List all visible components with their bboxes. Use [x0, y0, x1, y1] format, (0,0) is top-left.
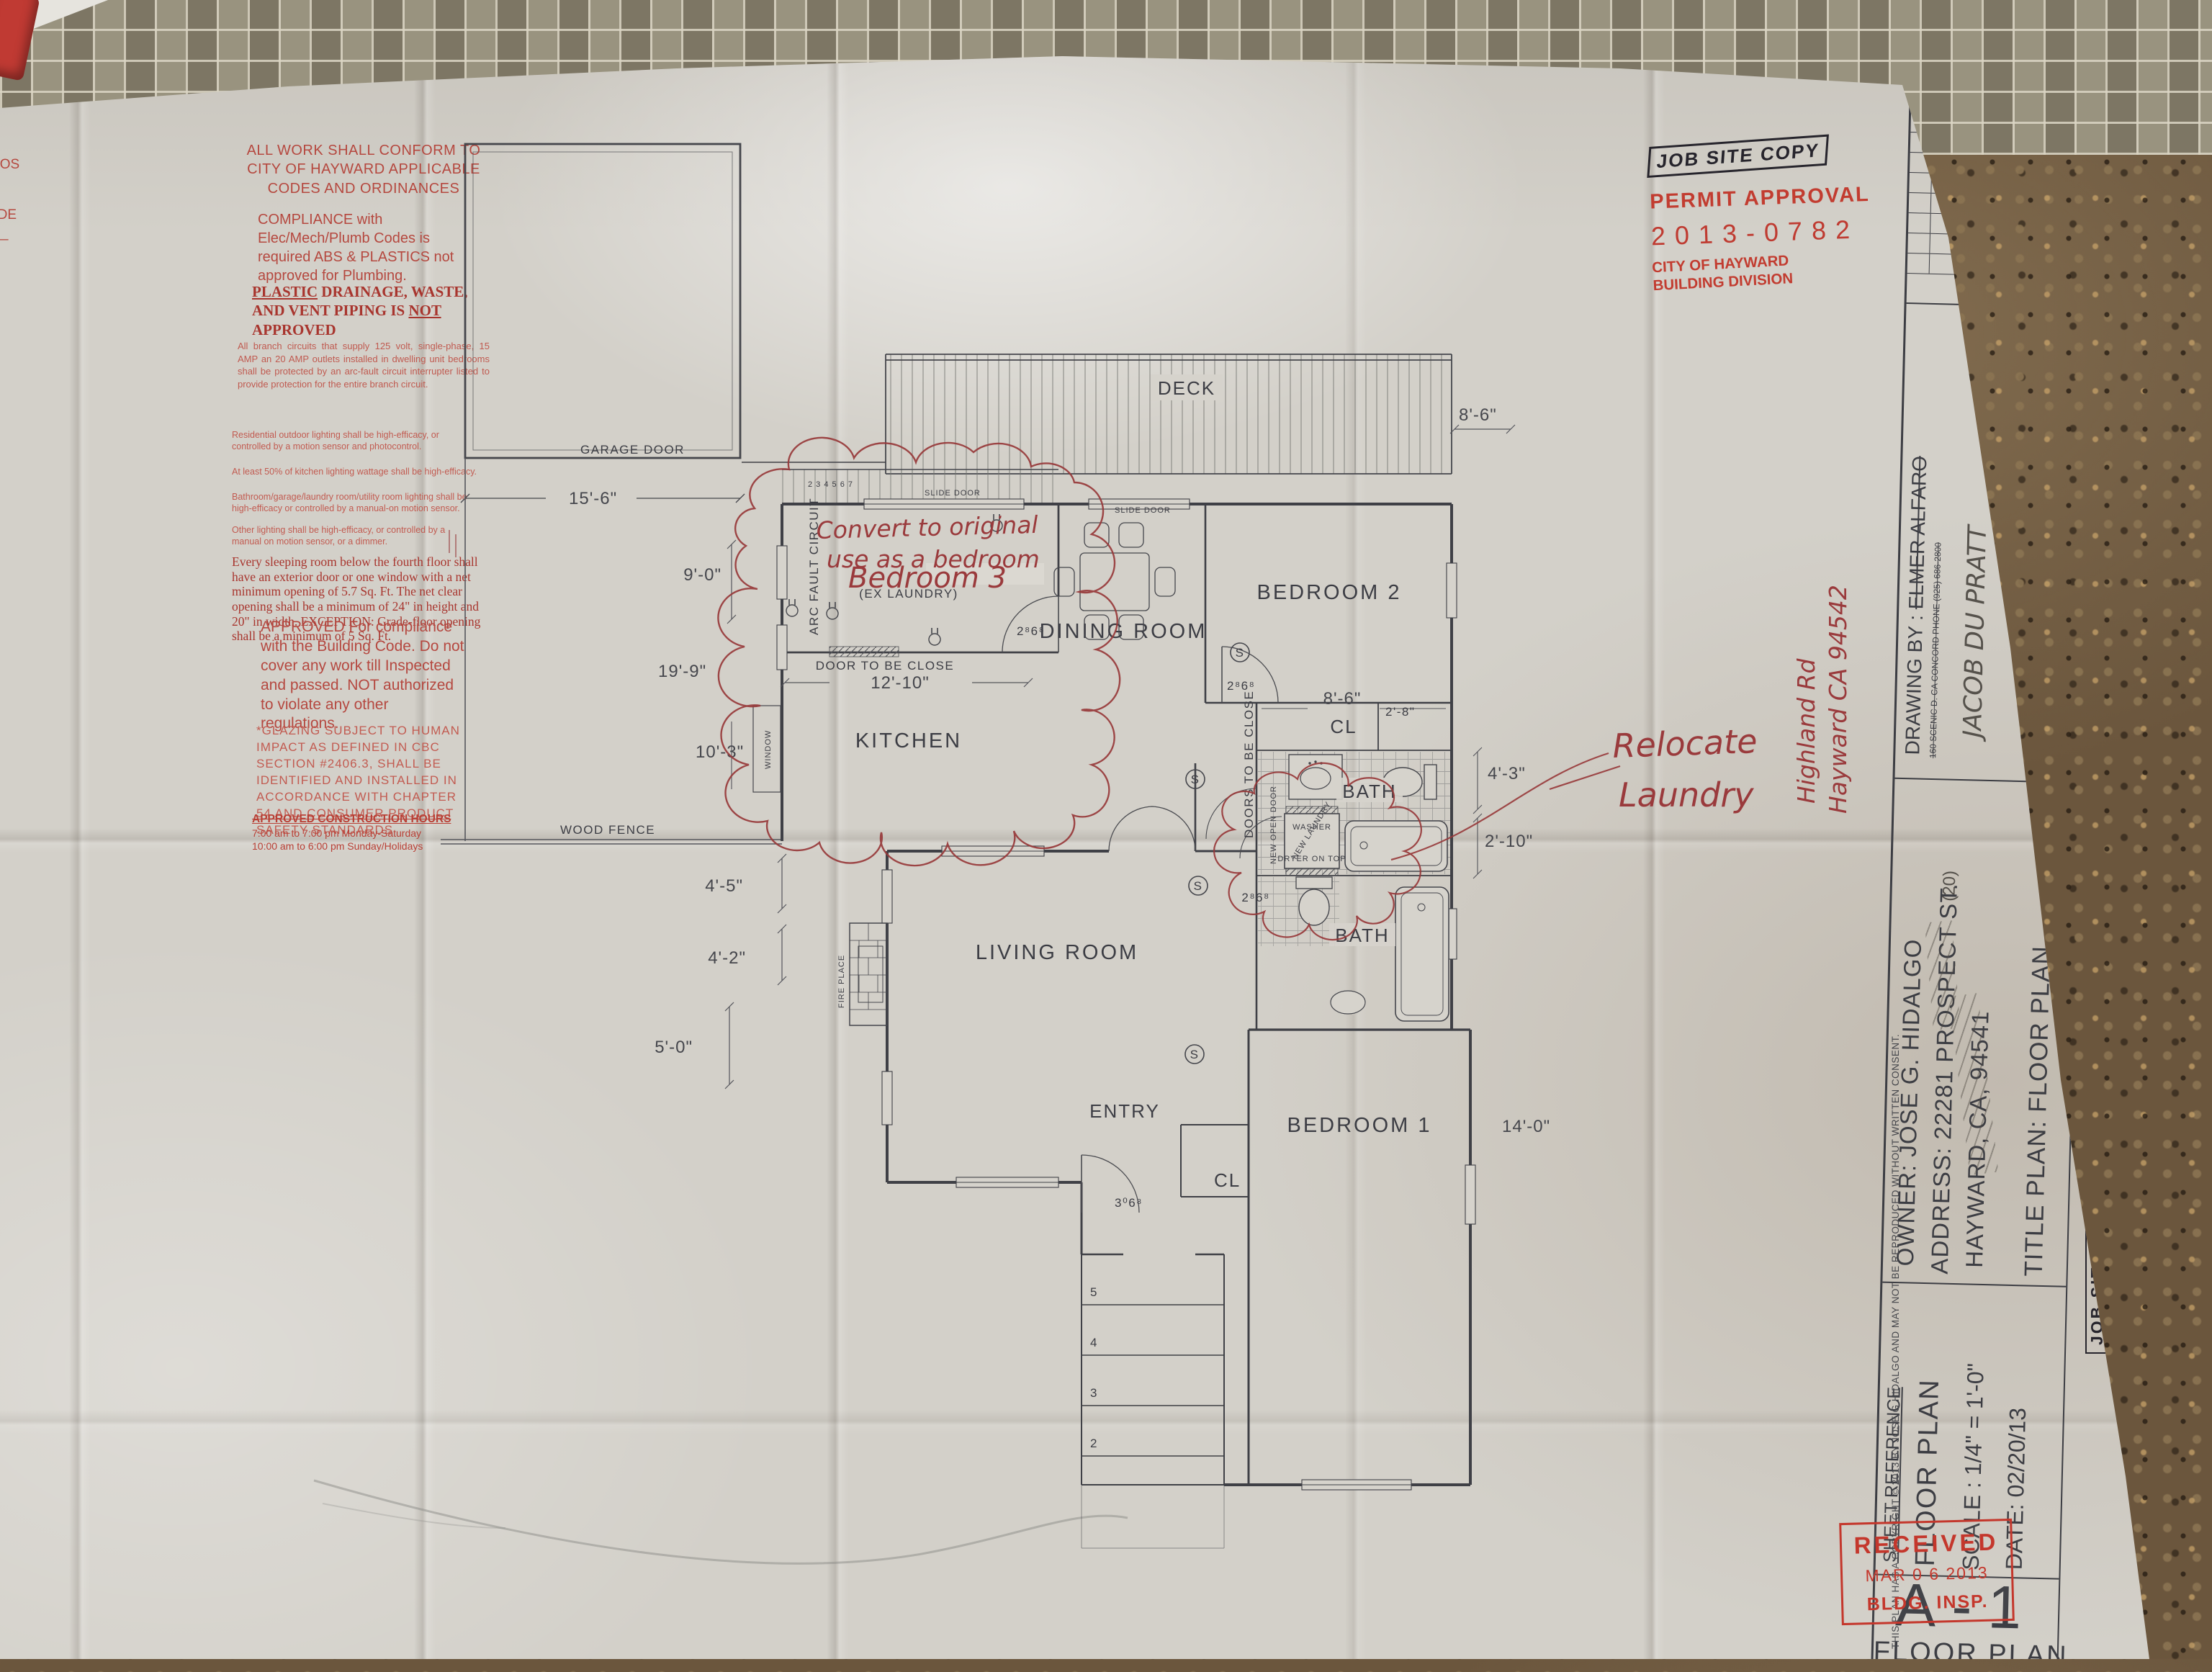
dryer-label: DRYER ON TOP	[1277, 855, 1346, 863]
dim-4-3: 4'-3"	[1488, 764, 1526, 783]
window-label: WINDOW	[764, 730, 773, 769]
outlet-symbol	[929, 628, 940, 645]
dim-line-4-3	[1473, 747, 1482, 814]
dim-2-8: 2'-8"	[1385, 705, 1415, 719]
dim-19-9: 19'-9"	[658, 662, 706, 681]
bedroom2-label: BEDROOM 2	[1256, 581, 1401, 604]
permit-approval-stamp: PERMIT APPROVAL	[1650, 182, 1881, 214]
living-room-label: LIVING ROOM	[976, 941, 1138, 964]
dim-5-0: 5'-0"	[655, 1038, 693, 1057]
kitchen-label: KITCHEN	[855, 729, 962, 752]
dim-4-5: 4'-5"	[705, 876, 743, 896]
address-pencil-note: (20)	[1941, 871, 1959, 902]
received-stamp: RECEIVED MAR 0 6 2013 BLDG. INSP.	[1839, 1519, 2015, 1625]
new-open-door-label: NEW OPEN DOOR	[1269, 786, 1278, 864]
stair-number: 2	[1090, 1437, 1098, 1450]
svg-text:S: S	[1236, 646, 1245, 660]
dim-4-2: 4'-2"	[708, 948, 746, 968]
dim-15-6: 15'-6"	[569, 489, 617, 508]
handwritten-highland-rd: Highland Rd	[1792, 657, 1820, 804]
revisions-empty-row	[1907, 253, 2092, 278]
received-label: RECEIVED	[1846, 1528, 2007, 1560]
red-edge-marks	[449, 530, 456, 557]
dim-14-0: 14'-0"	[1502, 1117, 1550, 1136]
revisions-empty-row	[1910, 153, 2094, 177]
handwritten-laundry: Laundry	[1619, 776, 1754, 814]
title-block: REVISIONS BY DRAWING BY : ELMER ALFARO 1…	[1871, 85, 2096, 1666]
wood-fence-label: WOOD FENCE	[560, 823, 655, 837]
door-to-be-close-label: DOOR TO BE CLOSE	[816, 659, 954, 673]
handwritten-hayward-ca: Hayward CA 94542	[1824, 585, 1852, 814]
handwritten-relocate: Relocate	[1611, 722, 1758, 765]
handwritten-convert-line1: Convert to original	[816, 511, 1038, 544]
job-site-copy-stamp-vertical: JOB SITE COPY	[2085, 1182, 2109, 1354]
handwritten-signature-note: (W SIGNATURE)	[2020, 562, 2044, 721]
dim-2-10: 2'-10"	[1485, 832, 1533, 851]
slide-door-label: SLIDE DOOR	[1115, 506, 1171, 515]
permit-number: 2013-0782	[1650, 213, 1881, 251]
deck	[782, 354, 1515, 504]
entry-closet-label: CL	[1214, 1169, 1241, 1191]
received-date: MAR 0 6 2013	[1847, 1563, 2008, 1586]
deck-step-numbers: 2 3 4 5 6 7	[808, 480, 853, 489]
dim-deck-8-6: 8'-6"	[1459, 405, 1497, 425]
dim-10-3: 10'-3"	[696, 742, 744, 762]
bathroom2-fixtures	[1258, 877, 1449, 1021]
smoke-detector-symbol: S	[1185, 1045, 1204, 1064]
bath2-label: BATH	[1335, 925, 1389, 946]
entry-label: ENTRY	[1089, 1100, 1160, 1122]
received-dept: BLDG. INSP.	[1848, 1591, 2008, 1616]
stair-number: 3	[1090, 1386, 1098, 1400]
handwritten-drafter-name: JACOB DU PRATT	[1961, 525, 1991, 737]
dim-cl-8-6: 8'-6"	[1323, 689, 1362, 709]
svg-text:S: S	[1191, 773, 1200, 786]
dim-9-0: 9'-0"	[683, 565, 721, 585]
drawing-by-name: ELMER ALFARO	[1905, 456, 1930, 610]
permit-stamp-group: JOB SITE COPY PERMIT APPROVAL 2013-0782 …	[1647, 135, 1883, 292]
deck-label: DECK	[1158, 377, 1215, 399]
smoke-detector-symbol: S	[1186, 770, 1205, 788]
door-size-2868: 2⁸6⁸	[1241, 891, 1269, 904]
dim-12-10: 12'-10"	[871, 673, 929, 693]
bedroom1-label: BEDROOM 1	[1287, 1114, 1431, 1137]
door-size-3068: 3⁰6⁸	[1115, 1196, 1143, 1210]
closet-label: CL	[1330, 716, 1357, 737]
revisions-empty-row	[1909, 173, 2093, 197]
outlet-symbol	[786, 599, 798, 616]
smoke-detector-symbol: S	[1189, 876, 1208, 895]
svg-text:DOORS TO BE CLOSE: DOORS TO BE CLOSE	[1242, 691, 1256, 838]
fireplace-label: FIRE PLACE	[837, 955, 846, 1008]
garage-door-label: GARAGE DOOR	[580, 443, 685, 457]
site-lines	[314, 458, 1128, 1563]
blueprint-paper-sheet: ALL WORK SHALL CONFORM TO CITY OF HAYWAR…	[0, 0, 2212, 1659]
outlet-symbol	[827, 602, 838, 619]
fireplace	[850, 923, 887, 1025]
drawing-by-label: DRAWING BY :	[1901, 615, 1927, 755]
svg-text:S: S	[1190, 1048, 1200, 1061]
slide-door-label: SLIDE DOOR	[925, 489, 981, 498]
stair-number: 5	[1090, 1285, 1098, 1299]
doors-to-be-close-label: DOORS TO BE CLOSE	[1242, 691, 1256, 838]
handwritten-bedroom3: Bedroom 3	[848, 562, 1007, 595]
svg-text:S: S	[1194, 879, 1203, 893]
stair-number: 4	[1090, 1336, 1098, 1349]
